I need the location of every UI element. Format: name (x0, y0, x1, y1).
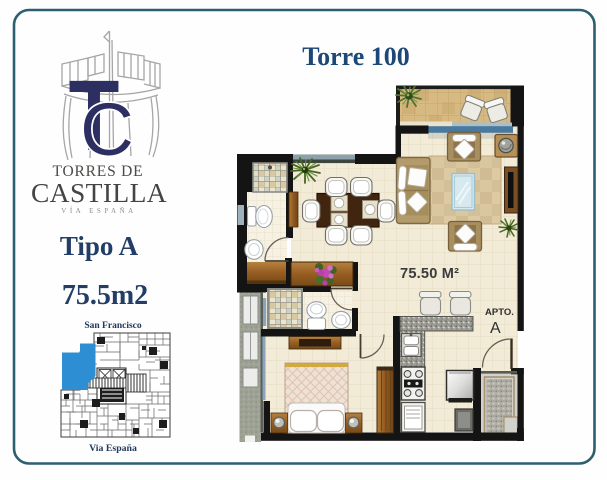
svg-text:75.5m2: 75.5m2 (62, 280, 148, 311)
svg-text:C: C (80, 88, 133, 171)
svg-text:VÍA ESPAÑA: VÍA ESPAÑA (61, 207, 136, 215)
svg-text:Via España: Via España (89, 443, 137, 454)
svg-text:75.50 M²: 75.50 M² (400, 266, 459, 282)
svg-text:CASTILLA: CASTILLA (31, 177, 167, 208)
svg-text:San Francisco: San Francisco (84, 321, 142, 331)
svg-text:APTO.: APTO. (485, 307, 514, 318)
svg-text:Torre 100: Torre 100 (302, 42, 410, 71)
svg-text:Tipo A: Tipo A (60, 231, 139, 261)
svg-text:A: A (490, 320, 501, 337)
